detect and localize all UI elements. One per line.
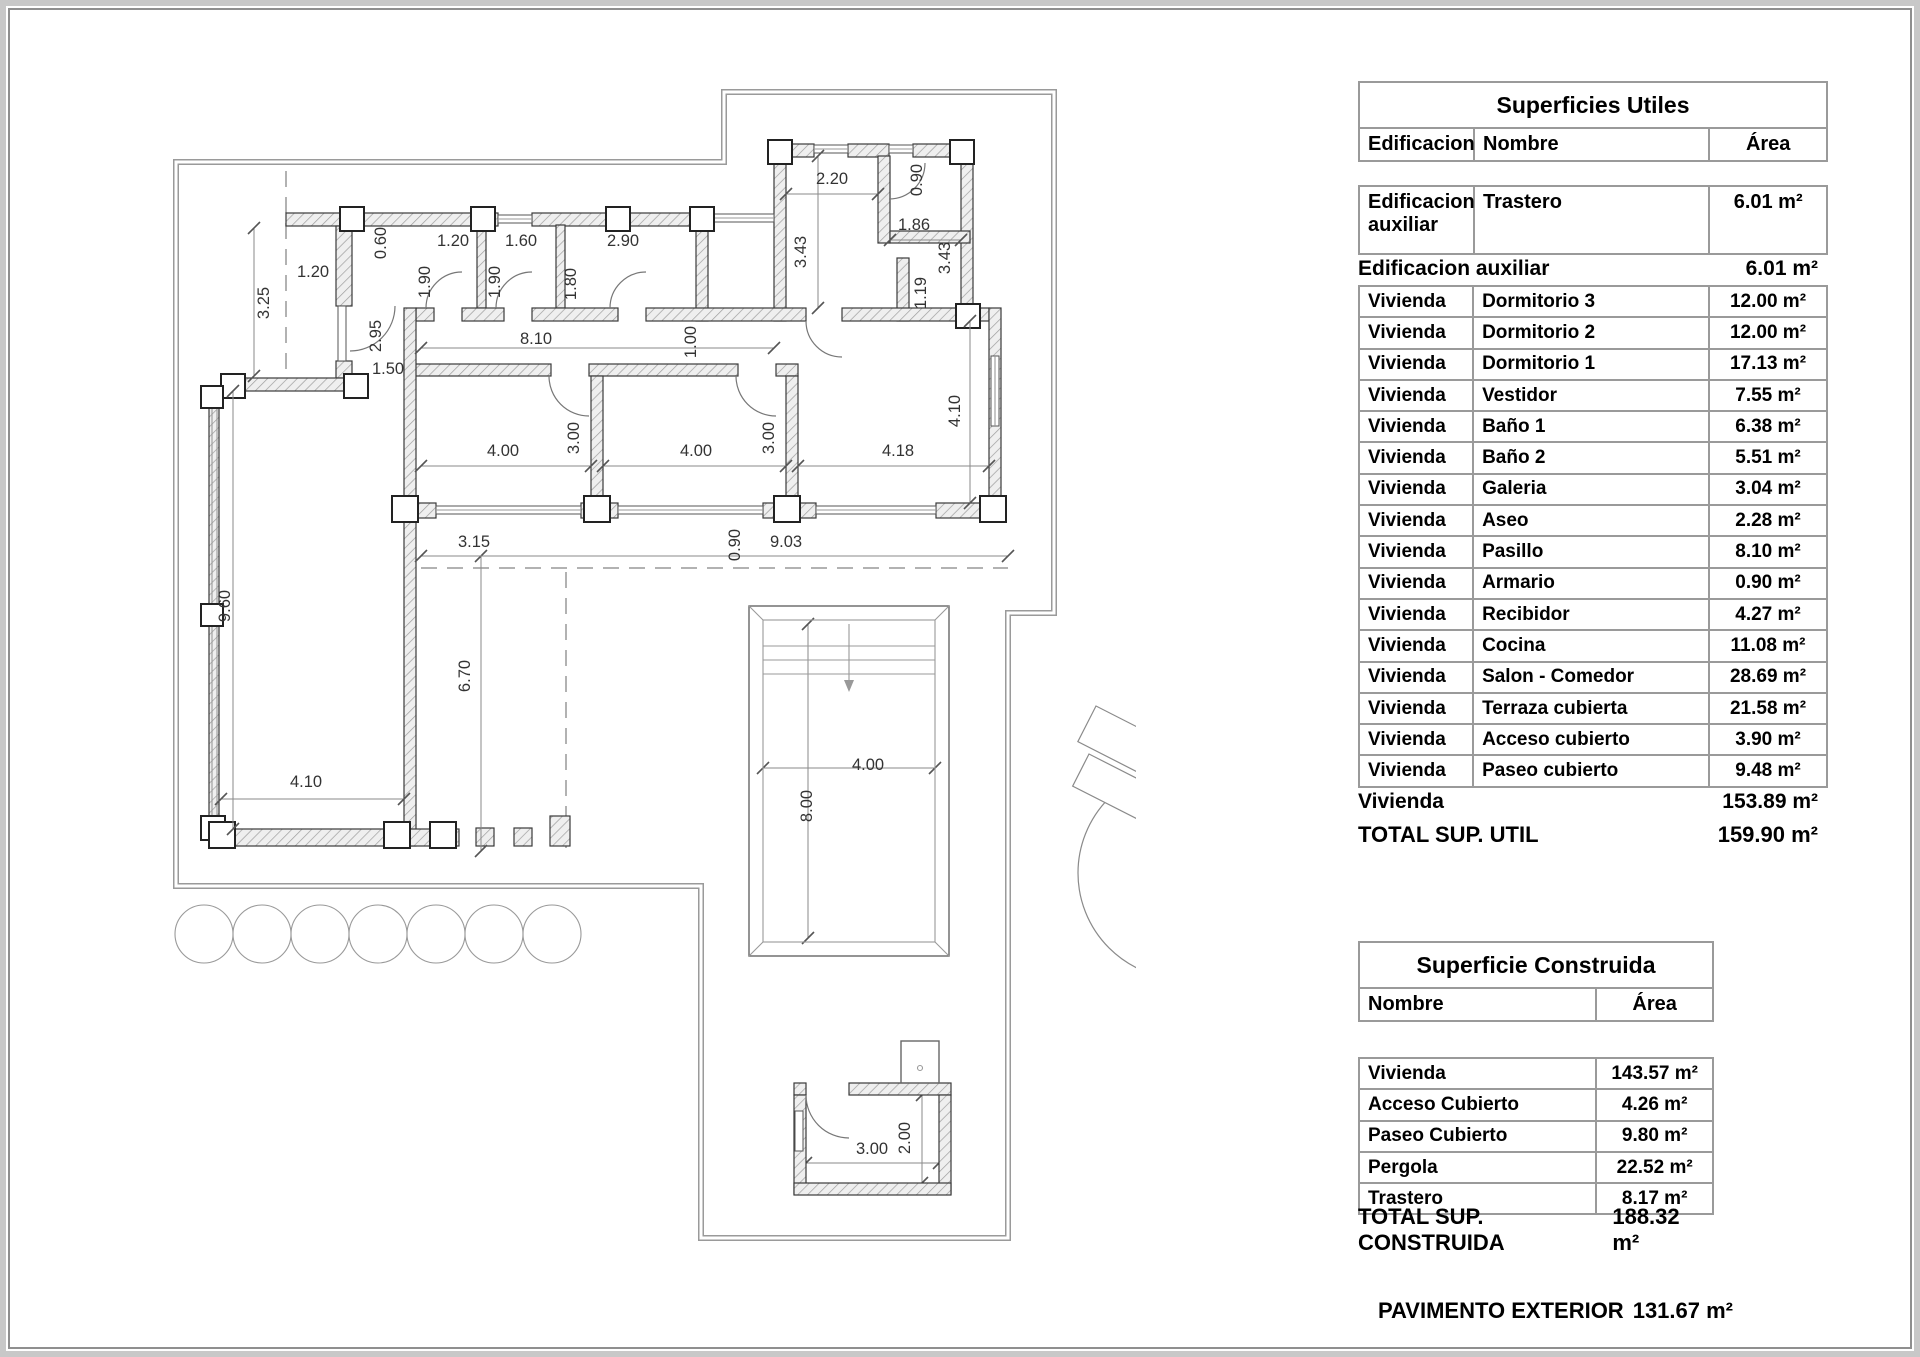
tree [1073,706,1136,1003]
dim-label: 2.20 [816,170,848,188]
dim-label: 6.70 [456,660,474,692]
col-nombre: Nombre [1360,989,1597,1020]
dim-label: 1.86 [898,216,930,234]
col-nombre: Nombre [1475,129,1710,160]
table-row: ViviendaBaño 25.51 m² [1358,441,1828,474]
total-util-label: TOTAL SUP. UTIL [1358,822,1539,848]
table-row: ViviendaPaseo cubierto9.48 m² [1358,754,1828,787]
vivienda-summary-label: Vivienda [1358,790,1444,814]
table-title-text: Superficies Utiles [1496,92,1689,119]
dim-label: 4.18 [882,442,914,460]
dim-label: 8.00 [798,790,816,822]
dim-label: 3.43 [936,242,954,274]
table-row: ViviendaAseo2.28 m² [1358,504,1828,537]
table-row: ViviendaDormitorio 117.13 m² [1358,348,1828,381]
dim-label: 3.15 [458,533,490,551]
table-row: ViviendaAcceso cubierto3.90 m² [1358,723,1828,756]
dim-label: 1.80 [562,268,580,300]
total-util-value: 159.90 m² [1718,822,1818,848]
total-construida-value: 188.32 m² [1612,1204,1704,1256]
dim-label: 4.00 [487,442,519,460]
drawing-sheet: .wall{fill:url(#hatch);stroke:#3a3a3a;st… [0,0,1920,1357]
dim-label: 4.00 [852,756,884,774]
cell-area: 6.01 m² [1710,187,1826,253]
pavimento-exterior-note: PAVIMENTO EXTERIOR 131.67 m² [1378,1298,1733,1324]
table-row: Vivienda143.57 m² [1358,1057,1714,1090]
dim-label: 3.00 [856,1140,888,1158]
vivienda-summary-value: 153.89 m² [1722,790,1818,814]
dim-label: 1.20 [437,232,469,250]
dim-label: 0.60 [372,227,390,259]
dim-label: 3.25 [255,287,273,319]
table-row: ViviendaBaño 16.38 m² [1358,410,1828,443]
table-row: Edificacion auxiliar Trastero 6.01 m² [1358,185,1828,255]
doors [350,163,925,416]
table-title-text: Superficie Construida [1417,952,1656,979]
dim-label: 1.90 [486,266,504,298]
cell-nombre: Trastero [1475,187,1710,253]
cell-edificacion: Edificacion auxiliar [1360,187,1475,253]
dim-label: 2.00 [896,1122,914,1154]
table-header: Nombre Área [1358,987,1714,1022]
col-edificacion: Edificacion [1360,129,1475,160]
table-row: ViviendaPasillo8.10 m² [1358,535,1828,568]
dim-label: 0.90 [726,529,744,561]
bushes [175,905,581,963]
dim-label: 4.10 [290,773,322,791]
aux-summary: Edificacion auxiliar 6.01 m² [1358,253,1828,285]
superficie-construida-table: Superficie Construida Nombre Área Vivien… [1358,941,1714,1247]
dim-label: 2.90 [607,232,639,250]
dim-label: 3.43 [792,236,810,268]
table-row: Pergola22.52 m² [1358,1151,1714,1184]
total-construida-label: TOTAL SUP. CONSTRUIDA [1358,1204,1612,1256]
pavimento-value: 131.67 m² [1633,1298,1733,1324]
table-title: Superficie Construida [1358,941,1714,989]
table-title: Superficies Utiles [1358,81,1828,129]
floor-plan: .wall{fill:url(#hatch);stroke:#3a3a3a;st… [6,6,1136,1357]
dim-label: 3.00 [760,422,778,454]
windows [212,145,999,826]
dim-label: 1.50 [372,360,404,378]
dim-label: 8.10 [520,330,552,348]
trastero-outbuilding [794,1041,951,1195]
dim-label: 1.00 [682,326,700,358]
table-header: Edificacion Nombre Área [1358,127,1828,162]
table-row: ViviendaDormitorio 312.00 m² [1358,285,1828,318]
table-row: ViviendaGaleria3.04 m² [1358,473,1828,506]
vivienda-summary: Vivienda 153.89 m² [1358,786,1828,818]
dim-label: 1.90 [416,266,434,298]
table-row: ViviendaRecibidor4.27 m² [1358,598,1828,631]
aux-summary-value: 6.01 m² [1746,257,1818,281]
col-area: Área [1710,129,1826,160]
pavimento-label: PAVIMENTO EXTERIOR [1378,1298,1624,1324]
superficies-utiles-table: Superficies Utiles Edificacion Nombre Ár… [1358,81,1828,852]
table-row: ViviendaVestidor7.55 m² [1358,379,1828,412]
dim-label: 9.03 [770,533,802,551]
dim-label: 1.60 [505,232,537,250]
table-row: Paseo Cubierto9.80 m² [1358,1120,1714,1153]
dim-label: 1.20 [297,263,329,281]
dim-label: 3.00 [565,422,583,454]
table-row: ViviendaDormitorio 212.00 m² [1358,316,1828,349]
col-area: Área [1597,989,1712,1020]
total-sup-util: TOTAL SUP. UTIL 159.90 m² [1358,818,1828,852]
dim-label: 0.90 [908,164,926,196]
dim-label: 9.60 [216,590,234,622]
table-row: ViviendaSalon - Comedor28.69 m² [1358,661,1828,694]
dim-label: 4.10 [946,395,964,427]
table-row: ViviendaCocina11.08 m² [1358,629,1828,662]
aux-summary-label: Edificacion auxiliar [1358,257,1549,281]
pool [749,606,949,956]
table-row: Acceso Cubierto4.26 m² [1358,1088,1714,1121]
dim-label: 4.00 [680,442,712,460]
dim-label: 1.19 [912,277,930,309]
table-row: ViviendaArmario0.90 m² [1358,567,1828,600]
total-sup-construida: TOTAL SUP. CONSTRUIDA 188.32 m² [1358,1213,1714,1247]
dim-label: 2.95 [367,320,385,352]
table-row: ViviendaTerraza cubierta21.58 m² [1358,692,1828,725]
